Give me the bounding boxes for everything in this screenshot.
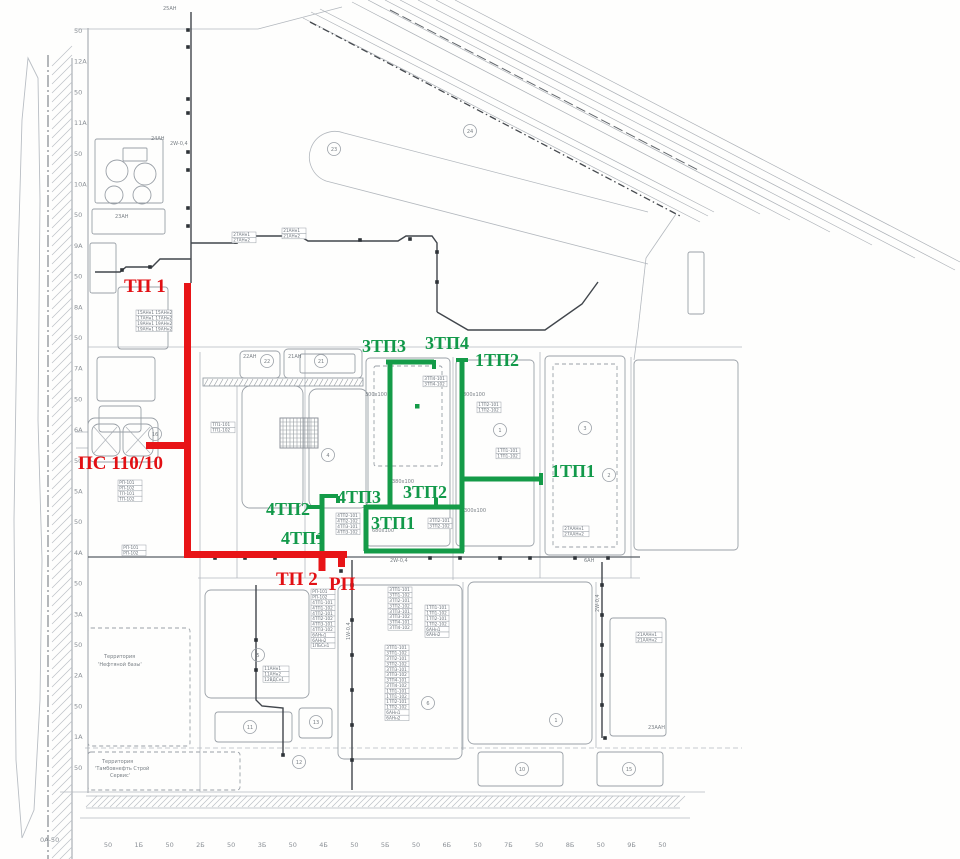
annotation-label: 2W-0,4 bbox=[595, 594, 601, 612]
circled-number-label: 1 bbox=[554, 718, 557, 724]
circled-number-label: 6 bbox=[426, 701, 429, 707]
building-outline bbox=[88, 628, 190, 746]
annotation-text: 4ТП3-101 bbox=[337, 524, 358, 529]
axis-label-bottom: 50 bbox=[104, 841, 112, 849]
railway-tracks bbox=[303, 0, 960, 270]
annotation-text: 3ТП3-102 bbox=[386, 672, 407, 677]
annotation-text: 6АНн2 bbox=[386, 715, 400, 720]
railway-line bbox=[418, 0, 915, 258]
railway-line bbox=[400, 0, 872, 245]
annotation-text: 11АНн2 bbox=[264, 672, 281, 677]
axis-label-left: 50 bbox=[74, 518, 82, 526]
axis-label-left: 4А bbox=[74, 549, 83, 557]
annotation-text: 4ТП3-102 bbox=[337, 529, 358, 534]
rack-node bbox=[339, 569, 343, 573]
rack-node bbox=[435, 280, 439, 284]
rack-node bbox=[120, 268, 124, 272]
annotation-text: 17АНн1 17АНн2 bbox=[137, 316, 172, 321]
annotation-text: 27АНн2 bbox=[233, 238, 250, 243]
annotation-label: 300х100 bbox=[464, 508, 486, 514]
site-plan-canvas: 222123241641325611131211015 РП-101РП-102… bbox=[0, 0, 960, 859]
railway-line bbox=[455, 0, 960, 262]
label-3tp2: 3ТП2 bbox=[403, 482, 447, 502]
building-outline bbox=[553, 364, 617, 547]
annotation-label: 6АН bbox=[584, 558, 595, 564]
annotation-text: 3ТП2-102 bbox=[389, 603, 410, 608]
rack-node bbox=[498, 556, 502, 560]
axis-label-left: 9А bbox=[74, 242, 83, 250]
axis-label-bottom: 50 bbox=[412, 841, 420, 849]
label-ps-110-10: ПС 110/10 bbox=[78, 453, 163, 474]
railway-line bbox=[385, 0, 830, 232]
annotation-text: 1ТП1-101 bbox=[426, 605, 447, 610]
building-outline bbox=[90, 243, 116, 293]
circled-number-label: 16 bbox=[152, 432, 158, 438]
axis-label-left: 50 bbox=[74, 334, 82, 342]
rack-node bbox=[186, 28, 190, 32]
site-plan-drawing: 222123241641325611131211015 РП-101РП-102… bbox=[0, 0, 960, 859]
axis-label-bottom: 50 bbox=[658, 841, 666, 849]
axis-label-bottom: 50 bbox=[165, 841, 173, 849]
label-4tp1: 4ТП1 bbox=[281, 528, 325, 548]
circled-number-label: 10 bbox=[519, 767, 525, 773]
annotation-text: 15АНн1 15АНн2 bbox=[137, 310, 172, 315]
rack-node bbox=[186, 150, 190, 154]
rack-node bbox=[186, 97, 190, 101]
annotation-text: 21ААНн2 bbox=[637, 638, 657, 643]
annotation-label: 'Тамбовнефть Строй bbox=[95, 765, 149, 772]
annotation-text: 3ТП4-101 bbox=[389, 620, 410, 625]
label-4tp2: 4ТП2 bbox=[266, 499, 310, 519]
annotation-label: 25АН bbox=[163, 6, 177, 12]
annotation-label: Сервис' bbox=[110, 773, 130, 779]
annotation-text: 3ТП4-101 bbox=[424, 376, 445, 381]
axis-label-left: 5А bbox=[74, 488, 83, 496]
axis-label-left: 50 bbox=[74, 764, 82, 772]
axis-label-left: 50 bbox=[74, 580, 82, 588]
annotation-label: 24АН bbox=[151, 136, 165, 142]
pipe-racks bbox=[95, 12, 610, 790]
building-outline bbox=[634, 360, 738, 550]
annotation-text: 4ТП1-101 bbox=[312, 600, 333, 605]
rack-node bbox=[408, 237, 412, 241]
annotation-text: 27ААНн2 bbox=[564, 532, 584, 537]
rack-node bbox=[148, 265, 152, 269]
axis-label-left: 8А bbox=[74, 303, 83, 311]
building-outline bbox=[468, 582, 592, 744]
annotation-text: 6АНн1 bbox=[312, 632, 326, 637]
axis-label-bottom: 7Б bbox=[504, 841, 513, 849]
railway-line bbox=[368, 0, 790, 220]
annotation-text: 3ТП4-102 bbox=[424, 382, 445, 387]
tank-circle bbox=[106, 160, 128, 182]
railway-line bbox=[352, 2, 760, 214]
rack-node bbox=[606, 556, 610, 560]
railway-line bbox=[303, 18, 700, 222]
road-line bbox=[258, 7, 342, 29]
annotation-label: 2W-0,4 bbox=[170, 141, 188, 147]
annotation-text: 3ТП2-101 bbox=[386, 656, 407, 661]
tank-circle bbox=[105, 186, 123, 204]
rack-node bbox=[600, 703, 604, 707]
circled-number-label: 13 bbox=[313, 720, 319, 726]
circled-number-label: 1 bbox=[498, 428, 501, 434]
annotation-label: 2W-0,4 bbox=[390, 558, 408, 564]
building-outline bbox=[300, 354, 355, 373]
rack-node bbox=[603, 736, 607, 740]
rack-node bbox=[350, 618, 354, 622]
annotation-text: 6АНн2 bbox=[312, 638, 326, 643]
annotation-text: ТП-101 bbox=[118, 491, 135, 496]
annotation-text: 4ТП2-101 bbox=[312, 611, 333, 616]
annotation-label: 1W-0,4 bbox=[346, 622, 352, 640]
annotation-text: 3ТП2-101 bbox=[389, 598, 410, 603]
circled-number-label: 15 bbox=[626, 767, 632, 773]
annotation-text: 1ТП2-102 bbox=[426, 621, 447, 626]
axis-label-left: 12А bbox=[74, 58, 87, 66]
circled-number-label: 22 bbox=[264, 359, 270, 365]
axis-label-left: 50 bbox=[74, 702, 82, 710]
annotation-text: РП-102 bbox=[119, 486, 135, 491]
annotation-label: 300х100 bbox=[365, 392, 387, 398]
railway-line bbox=[310, 22, 682, 217]
circled-number-label: 12 bbox=[296, 760, 302, 766]
annotation-text: 1ТП2-101 bbox=[478, 402, 499, 407]
annotation-text: 3ТП4-101 bbox=[386, 678, 407, 683]
axis-label-left: 11А bbox=[74, 119, 87, 127]
green-node bbox=[415, 404, 420, 409]
building-outline bbox=[97, 357, 155, 401]
annotation-text: 3ТП3-102 bbox=[389, 614, 410, 619]
annotation-text: 3ТП1-101 bbox=[389, 587, 410, 592]
railway-line bbox=[311, 12, 708, 216]
rack-node bbox=[458, 556, 462, 560]
building-outline bbox=[92, 209, 165, 234]
axis-label-bottom: 9Б bbox=[627, 841, 636, 849]
annotation-text: 3ТП2-102 bbox=[429, 524, 450, 529]
rack-node bbox=[186, 111, 190, 115]
road-line bbox=[638, 258, 646, 330]
axis-label-left: 50 bbox=[74, 273, 82, 281]
circled-number-label: 5 bbox=[256, 653, 259, 659]
rack-node bbox=[254, 638, 258, 642]
axis-label-bottom: 6Б bbox=[442, 841, 451, 849]
annotation-text: 21АНн1 bbox=[283, 228, 300, 233]
label-3tp1: 3ТП1 bbox=[371, 513, 415, 533]
annotation-text: 3ТП4-102 bbox=[386, 683, 407, 688]
circled-number-label: 24 bbox=[467, 129, 473, 135]
annotation-text: 27АНн1 bbox=[233, 232, 250, 237]
road-line bbox=[646, 214, 676, 258]
circled-number-label: 21 bbox=[318, 359, 324, 365]
annotation-text: 6АНн1 bbox=[386, 710, 400, 715]
building-outline bbox=[99, 406, 141, 432]
rack-node bbox=[186, 45, 190, 49]
rack-node bbox=[528, 556, 532, 560]
annotation-text: 4ТП3-102 bbox=[312, 627, 333, 632]
axis-label-bottom: 2Б bbox=[196, 841, 205, 849]
label-tp2: ТП 2 bbox=[276, 569, 318, 590]
rack-node bbox=[350, 653, 354, 657]
rack-node bbox=[428, 556, 432, 560]
annotation-text: 12ВДСн1 bbox=[264, 677, 284, 682]
annotation-text: 3ТП4-102 bbox=[389, 625, 410, 630]
annotation-label: 21АН bbox=[288, 354, 302, 360]
axis-label-bottom: 1Б bbox=[134, 841, 143, 849]
annotation-text: 3ТП2-102 bbox=[386, 661, 407, 666]
annotation-text: 27ААНн1 bbox=[564, 526, 584, 531]
rack-node bbox=[186, 206, 190, 210]
axis-label-left: 50 bbox=[74, 641, 82, 649]
axis-label-bottom: 50 bbox=[597, 841, 605, 849]
building-outline bbox=[123, 148, 147, 161]
railway-line bbox=[390, 10, 700, 171]
annotation-label: 'Нефтяной базы' bbox=[98, 661, 142, 668]
rack-node bbox=[600, 613, 604, 617]
axis-label-bottom: 50 bbox=[535, 841, 543, 849]
annotation-text: 4ТП2-101 bbox=[337, 513, 358, 518]
circled-number-label: 2 bbox=[607, 473, 610, 479]
annotation-label: 23АН bbox=[115, 214, 129, 220]
rack-node bbox=[350, 723, 354, 727]
annotation-label: 22АН bbox=[243, 354, 257, 360]
rack-node bbox=[186, 168, 190, 172]
axis-label-left: 50 bbox=[74, 27, 82, 35]
building-outline bbox=[456, 360, 534, 546]
annotation-text: 3ТП1-102 bbox=[386, 651, 407, 656]
annotation-text: 4ТП2-102 bbox=[337, 519, 358, 524]
rack-node bbox=[358, 238, 362, 242]
axis-label-bottom: 5Б bbox=[381, 841, 390, 849]
annotation-label: Территория bbox=[101, 759, 133, 765]
annotation-text: 1ТП2-102 bbox=[386, 705, 407, 710]
rack-node bbox=[600, 643, 604, 647]
tank-circle bbox=[134, 163, 156, 185]
annotation-text: 4ТП3-101 bbox=[312, 622, 333, 627]
annotation-text: 6АНн2 bbox=[426, 632, 440, 637]
annotation-label: 300х100 bbox=[463, 392, 485, 398]
axis-label-left: 1А bbox=[74, 733, 83, 741]
axis-label-left: 50 bbox=[74, 395, 82, 403]
railway-line bbox=[320, 9, 714, 212]
annotation-text: 1ПБСн1 bbox=[312, 643, 329, 648]
annotation-text: ТП1-102 bbox=[211, 428, 230, 433]
label-4tp3: 4ТП3 bbox=[337, 487, 381, 507]
label-1tp1: 1ТП1 bbox=[551, 461, 595, 481]
rack-node bbox=[435, 250, 439, 254]
axis-label-bottom: 50 bbox=[350, 841, 358, 849]
rack-node bbox=[350, 758, 354, 762]
loop-road bbox=[309, 131, 648, 264]
annotation-text: ТП-102 bbox=[118, 496, 135, 501]
axis-label-bottom: 8Б bbox=[566, 841, 575, 849]
annotation-text: 1ТП2-101 bbox=[386, 699, 407, 704]
cable-rack-line bbox=[437, 282, 598, 330]
annotation-text: 3ТП3-101 bbox=[386, 667, 407, 672]
building-outline bbox=[688, 252, 704, 314]
annotation-text: 1ТП1-102 bbox=[386, 694, 407, 699]
annotation-text: 21АНн2 bbox=[283, 234, 300, 239]
circled-number-label: 23 bbox=[331, 147, 337, 153]
annotation-text: 1ТП1-102 bbox=[426, 611, 447, 616]
label-1tp2: 1ТП2 bbox=[475, 350, 519, 370]
axis-label-bottom: 3Б bbox=[258, 841, 267, 849]
annotation-text: 1ТП1-102 bbox=[497, 454, 518, 459]
annotation-text: 19АНн1 19АНн2 bbox=[137, 326, 172, 331]
rack-node bbox=[600, 673, 604, 677]
annotation-text: 21ААНн1 bbox=[637, 632, 657, 637]
rack-node bbox=[350, 688, 354, 692]
annotations: РП-101РП-1024ТП1-1014ТП1-1024ТП2-1014ТП2… bbox=[95, 6, 665, 779]
annotation-text: 11АНн1 bbox=[264, 666, 281, 671]
cable-rack-line bbox=[191, 236, 437, 312]
axis-label-left: 50 bbox=[74, 88, 82, 96]
rack-node bbox=[186, 224, 190, 228]
axis-label-left: 50 bbox=[74, 150, 82, 158]
axis-origin-label: 0А-50 bbox=[40, 836, 59, 844]
building-outline bbox=[205, 590, 309, 698]
axis-label-bottom: 4Б bbox=[319, 841, 328, 849]
rack-node bbox=[573, 556, 577, 560]
axis-label-bottom: 50 bbox=[289, 841, 297, 849]
annotation-text: 1ТП2-102 bbox=[478, 408, 499, 413]
axis-label-bottom: 50 bbox=[473, 841, 481, 849]
axis-label-left: 6А bbox=[74, 426, 83, 434]
axis-label-left: 2А bbox=[74, 672, 83, 680]
cable-rack-line bbox=[95, 259, 191, 272]
label-3tp4: 3ТП4 bbox=[425, 333, 469, 353]
substation-grid-block bbox=[280, 418, 318, 448]
axis-label-left: 7А bbox=[74, 365, 83, 373]
annotation-label: 23ААН bbox=[648, 725, 665, 731]
rack-node bbox=[281, 753, 285, 757]
annotation-text: 3ТП3-101 bbox=[389, 609, 410, 614]
road-line bbox=[634, 330, 638, 360]
annotation-text: 4ТП1-102 bbox=[312, 605, 333, 610]
axis-label-left: 50 bbox=[74, 211, 82, 219]
circled-number-label: 3 bbox=[583, 426, 586, 432]
annotation-text: РП-101 bbox=[119, 480, 135, 485]
building-outline bbox=[242, 386, 303, 508]
annotation-text: 3ТП1-102 bbox=[389, 593, 410, 598]
axis-label-bottom: 50 bbox=[227, 841, 235, 849]
annotation-text: 3ТП2-101 bbox=[429, 518, 450, 523]
rack-node bbox=[254, 668, 258, 672]
annotation-text: ТП1-101 bbox=[211, 422, 230, 427]
annotation-text: РП-102 bbox=[123, 551, 139, 556]
building-outline bbox=[215, 712, 292, 742]
label-rp: РП bbox=[329, 574, 356, 595]
annotation-text: 4ТП2-102 bbox=[312, 616, 333, 621]
circled-number-label: 4 bbox=[326, 453, 329, 459]
axis-label-left: 10А bbox=[74, 181, 87, 189]
annotation-text: РП-102 bbox=[312, 595, 328, 600]
tank-circle bbox=[133, 186, 151, 204]
axis-label-left: 3А bbox=[74, 610, 83, 618]
label-tp1: ТП 1 bbox=[124, 276, 166, 297]
rack-node bbox=[600, 583, 604, 587]
annotation-label: Территория bbox=[103, 654, 135, 660]
label-3tp3: 3ТП3 bbox=[362, 336, 406, 356]
annotation-text: 19АНн1 19АНн2 bbox=[137, 321, 172, 326]
annotation-text: 1ТП1-101 bbox=[497, 448, 518, 453]
building-outline bbox=[545, 356, 625, 555]
annotation-text: 1ТП1-101 bbox=[386, 688, 407, 693]
annotation-text: РП-101 bbox=[123, 545, 139, 550]
annotation-text: 6АНн1 bbox=[426, 627, 440, 632]
circled-number-label: 11 bbox=[247, 725, 253, 731]
annotation-text: 1ТП2-101 bbox=[426, 616, 447, 621]
annotation-text: 3ТП1-101 bbox=[386, 645, 407, 650]
